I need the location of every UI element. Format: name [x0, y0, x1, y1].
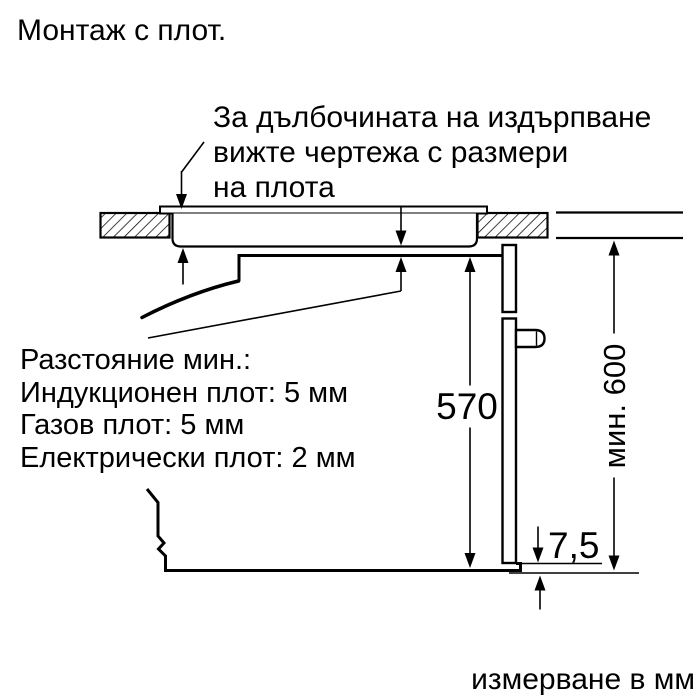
- annotation-line-1: За дълбочината на издърпване: [213, 100, 651, 135]
- dimension-570-label: 570: [436, 386, 498, 427]
- arrow-up-icon: [465, 257, 476, 272]
- minimum-clearance-note: Разстояние мин.: Индукционен плот: 5 мм …: [20, 344, 356, 474]
- arrow-up-icon: [535, 576, 546, 591]
- dimension-600-label: мин. 600: [597, 344, 632, 469]
- installation-diagram: 570 мин. 600 7,5 Монтаж с плот. За дълбо…: [0, 0, 700, 700]
- countertop-left-section: [101, 213, 170, 238]
- arrow-up-icon: [178, 248, 189, 263]
- oven-rear-panel-lower: [503, 319, 517, 564]
- clearance-line-1: Разстояние мин.:: [20, 344, 356, 377]
- arrow-down-icon: [609, 556, 620, 571]
- countertop-right-section: [478, 213, 548, 238]
- clearance-line-2: Индукционен плот: 5 мм: [20, 377, 356, 410]
- arrow-down-icon: [533, 548, 544, 563]
- cooktop-body: [173, 214, 478, 247]
- clearance-line-4: Електрически плот: 2 мм: [20, 442, 356, 475]
- annotation-leader-line: [182, 142, 205, 195]
- cooktop: [160, 207, 487, 247]
- oven-front-slope: [142, 281, 239, 318]
- dimension-75-label: 7,5: [548, 525, 599, 566]
- arrow-up-icon: [609, 241, 620, 256]
- units-note: измерване в мм: [471, 663, 695, 697]
- cooktop-top-plate: [160, 207, 487, 214]
- dimension-7-5: 7,5: [509, 525, 639, 610]
- clearance-line-3: Газов плот: 5 мм: [20, 409, 356, 442]
- cutout-depth-annotation: За дълбочината на издърпване вижте черте…: [213, 100, 651, 205]
- dimension-570: 570: [436, 257, 498, 568]
- oven-bottom-outline: [147, 489, 521, 571]
- oven-rear-panel-upper: [503, 245, 517, 312]
- annotation-line-3: на плота: [213, 170, 651, 205]
- oven-rear-knob: [516, 330, 545, 347]
- page-title: Монтаж с плот.: [17, 14, 226, 48]
- arrow-up-icon: [396, 257, 407, 272]
- dimension-min-600: мин. 600: [597, 241, 632, 571]
- arrow-down-icon: [465, 553, 476, 568]
- annotation-line-2: вижте чертежа с размери: [213, 135, 651, 170]
